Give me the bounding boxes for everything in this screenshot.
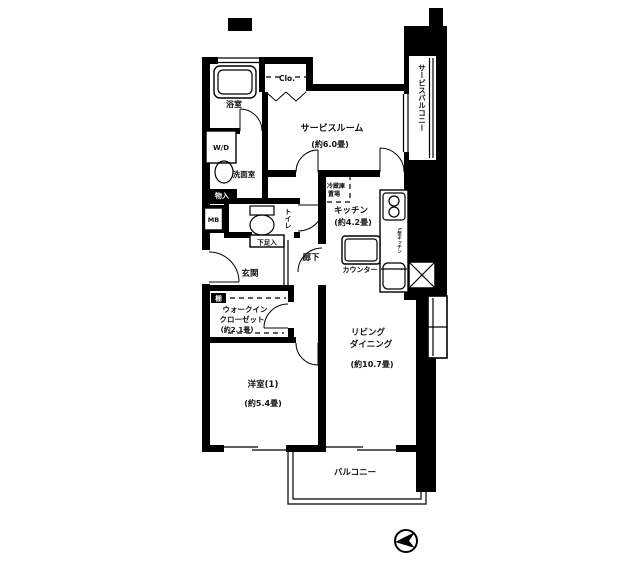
pipe-space-box <box>409 262 435 288</box>
counter-island <box>342 236 380 264</box>
bedroom-balcony-window <box>224 447 286 450</box>
kitchen-size: (約4.2畳) <box>334 217 371 227</box>
entrance-label: 玄関 <box>241 268 258 279</box>
service-balcony-label: サービスバルコニー <box>417 64 426 132</box>
washroom-sink <box>215 161 233 183</box>
living-east-window <box>428 296 447 358</box>
refrigerator-label-1: 冷蔵庫 <box>327 182 345 190</box>
closet-label: Clo. <box>279 74 295 83</box>
wic-label-2: クローゼット <box>220 314 265 324</box>
pillar-block <box>228 18 252 31</box>
service-room-size: (約6.0畳) <box>311 139 348 149</box>
wic-label-1: ウォークイン <box>223 304 268 314</box>
washroom-label: 洗面室 <box>233 169 256 179</box>
service-room-label: サービスルーム <box>301 122 364 134</box>
living-size: (約10.7畳) <box>350 359 393 369</box>
storage-label: 物入 <box>215 191 229 200</box>
closet-folding-door <box>266 92 286 101</box>
top-right-block <box>404 26 447 56</box>
shoe-cabinet-label: 下足入 <box>257 239 277 247</box>
toilet-fixture <box>250 206 274 235</box>
bedroom-size: (約5.4畳) <box>244 398 281 408</box>
front-door <box>209 252 239 282</box>
wic-door <box>264 304 288 328</box>
refrigerator-label-2: 置場 <box>328 190 340 198</box>
compass-icon <box>395 530 417 552</box>
wic-shelf-label: 棚 <box>215 294 222 303</box>
top-right-stub <box>429 8 443 28</box>
service-room-door <box>296 150 318 172</box>
toilet-label: トイレ <box>284 208 292 229</box>
floor-plan-page: 浴室 Clo. W/D 洗面室 物入 MB トイレ 下足入 玄関 廊下 サービス… <box>0 0 640 569</box>
balcony-label: バルコニー <box>334 467 376 478</box>
bathroom-top-window <box>218 58 260 63</box>
kitchen-door <box>380 148 404 172</box>
balcony-outline <box>288 452 426 504</box>
bathroom-label: 浴室 <box>226 99 242 109</box>
bedroom-door <box>296 343 318 365</box>
floor-plan-drawing: 浴室 Clo. W/D 洗面室 物入 MB トイレ 下足入 玄関 廊下 サービス… <box>0 0 640 569</box>
wic-size: (約2.1畳) <box>221 325 254 334</box>
bedroom-label: 洋室(1) <box>248 379 279 390</box>
bathroom-door <box>240 109 262 131</box>
hallway-label: 廊下 <box>302 252 320 263</box>
counter-label: カウンター <box>343 265 378 274</box>
living-label-2: ダイニング <box>350 339 393 350</box>
meter-box-label: MB <box>208 216 219 224</box>
living-label-1: リビング <box>351 327 386 338</box>
washer-dryer-label: W/D <box>213 144 229 152</box>
kitchen-counter-strip <box>380 190 408 292</box>
living-balcony-window <box>324 447 396 450</box>
kitchen-label: キッチン <box>334 206 369 216</box>
